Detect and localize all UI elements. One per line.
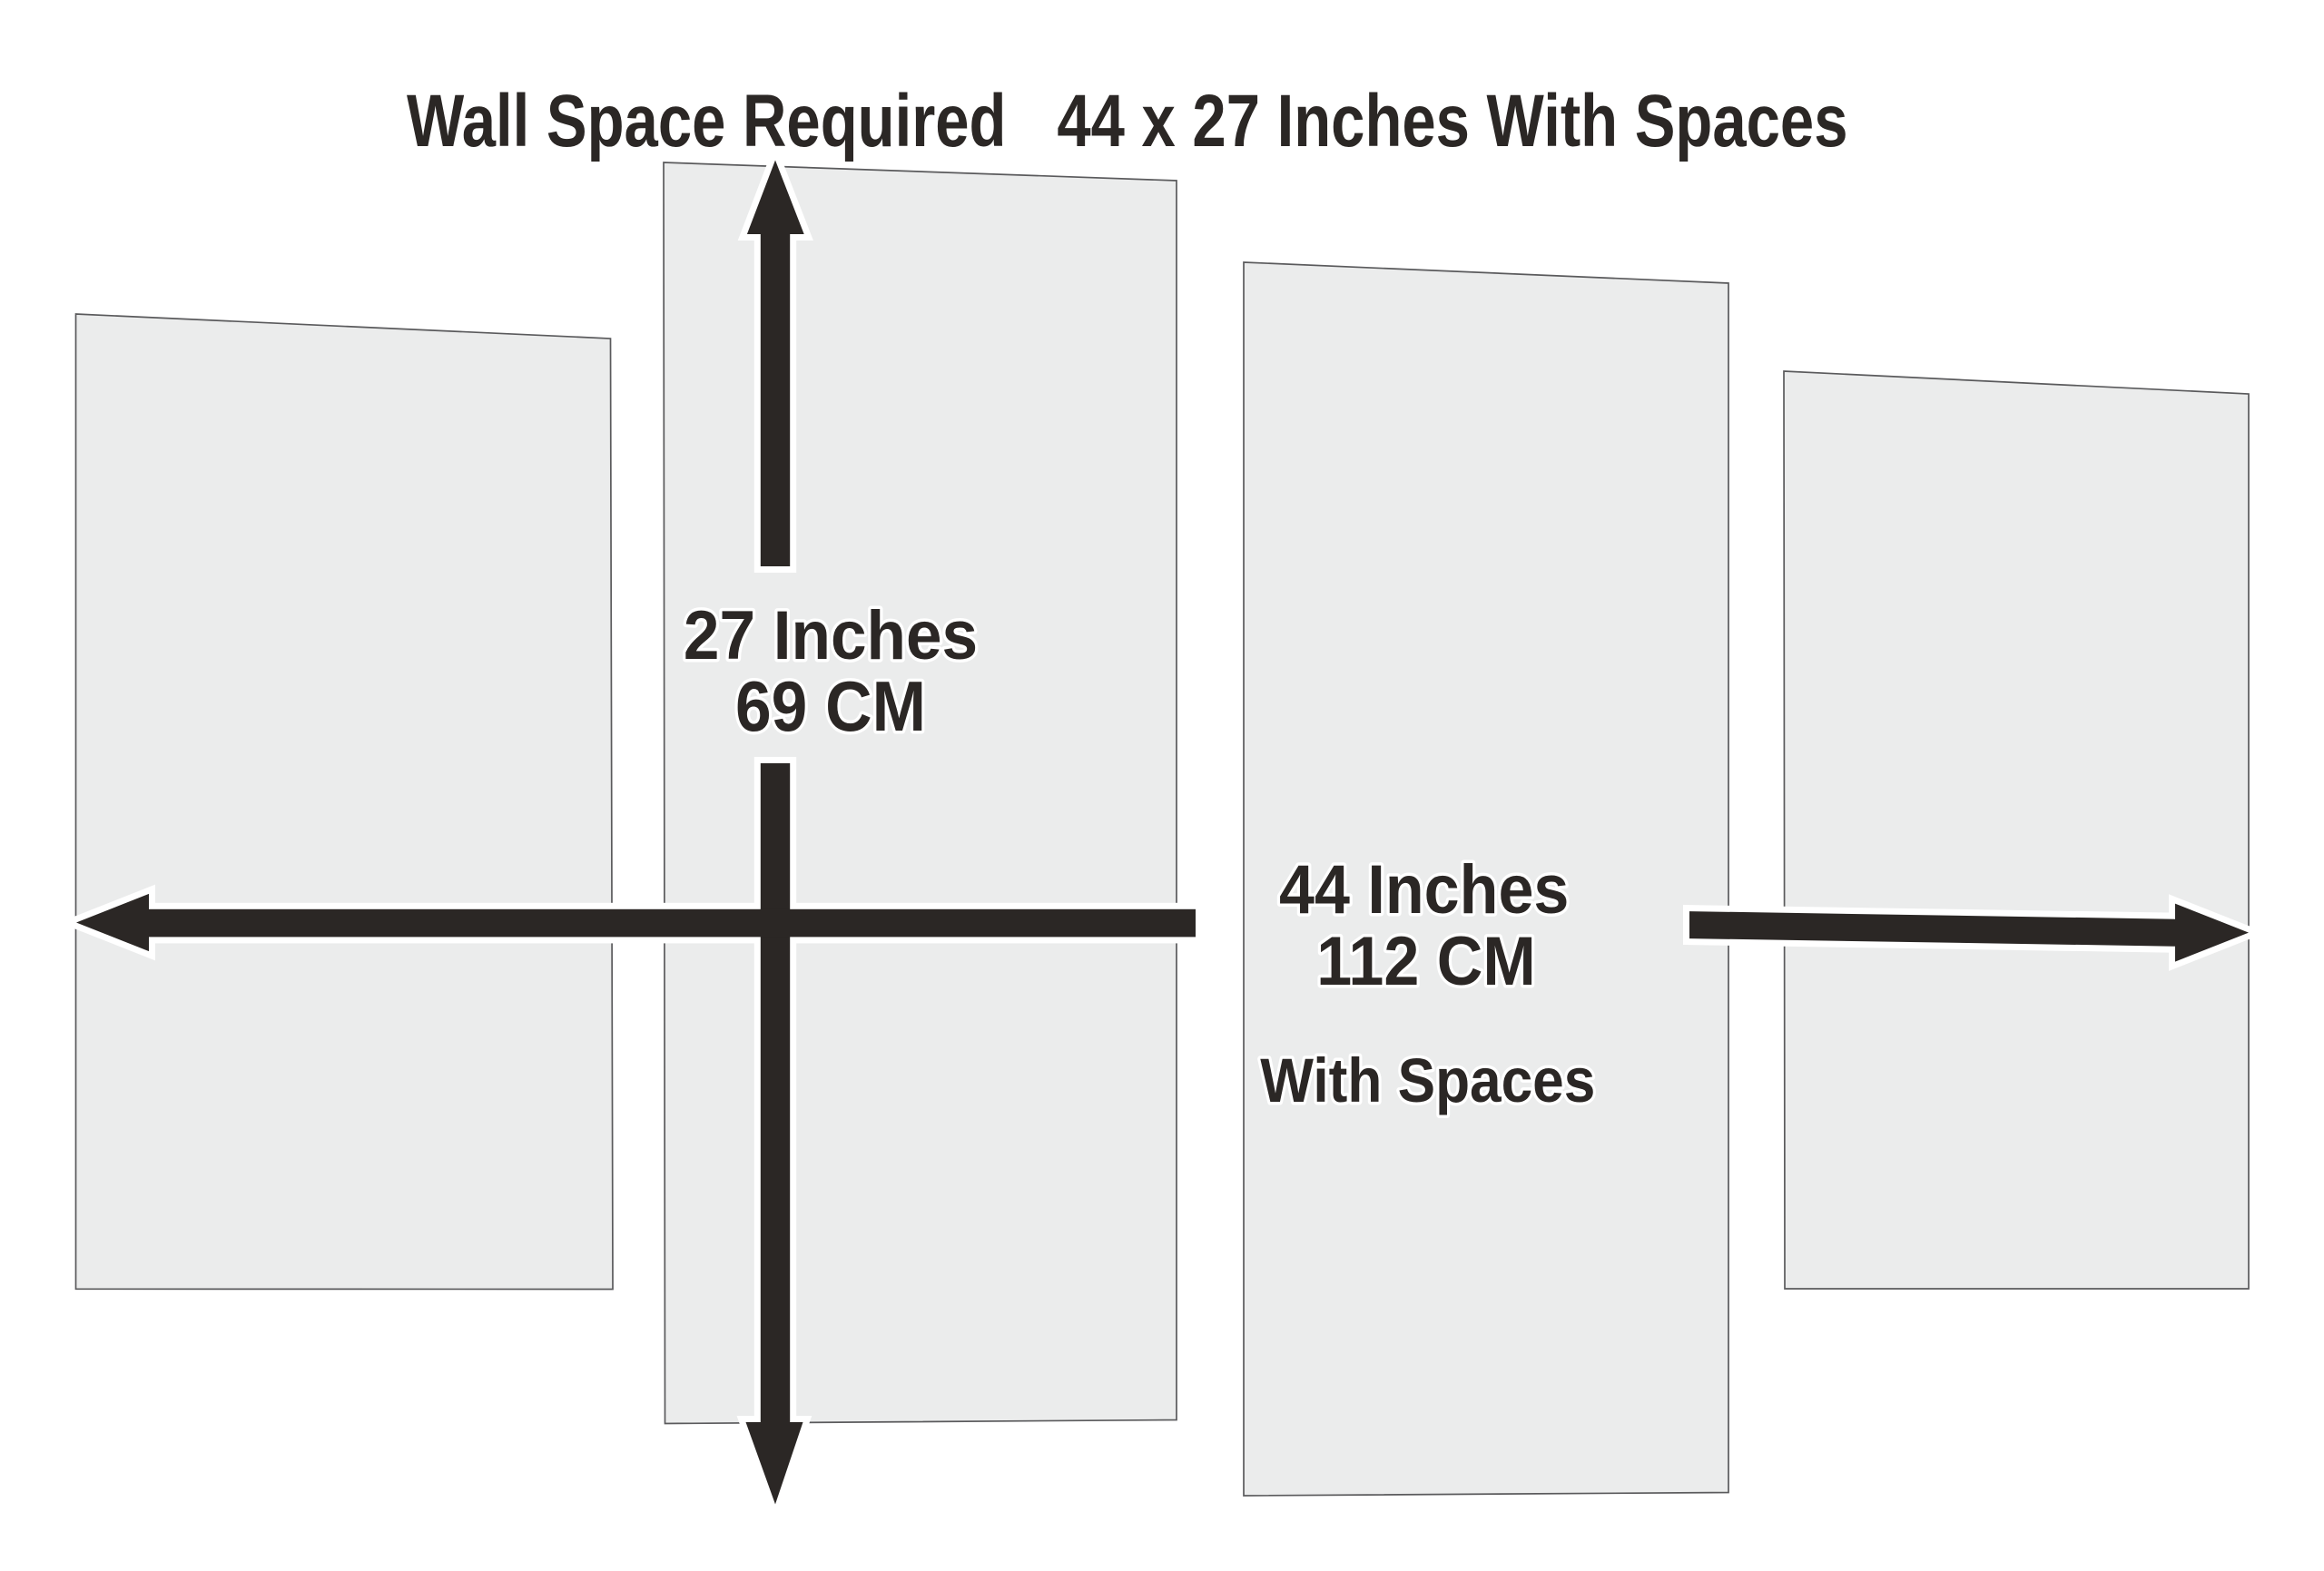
svg-text:Wall Space Required 44 x 27: Wall Space Required 44 x 27 Inches With … [407,79,1847,162]
svg-text:27 Inches: 27 Inches [684,596,978,674]
svg-text:44 Inches: 44 Inches [1279,851,1569,928]
svg-text:69 CM: 69 CM [735,666,926,746]
svg-text:With Spaces: With Spaces [1260,1046,1595,1115]
svg-text:112 CM: 112 CM [1316,923,1535,999]
